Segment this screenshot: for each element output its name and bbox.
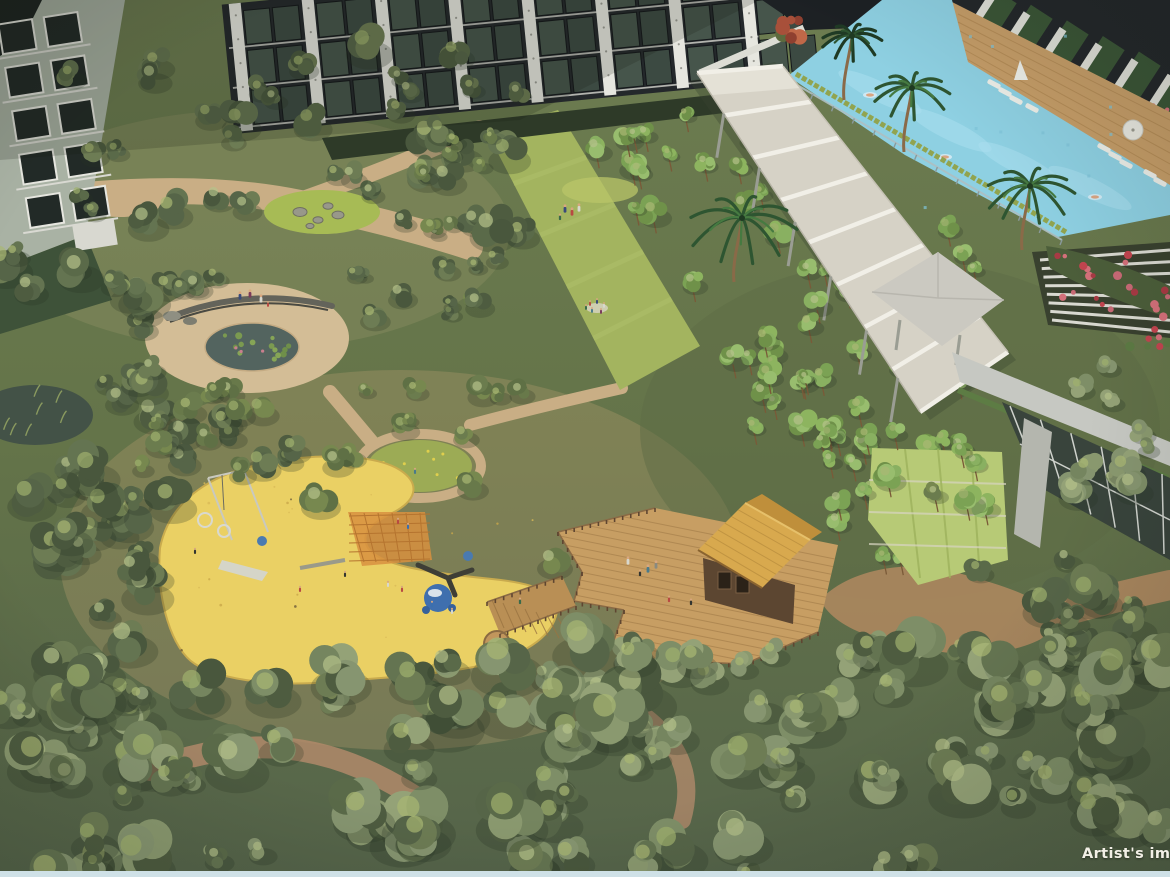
caption-artists-impression: Artist's imp	[1082, 846, 1170, 862]
lily-pond	[205, 323, 299, 371]
flowering-tree	[775, 16, 807, 45]
swimmer	[1088, 194, 1102, 200]
landscape-scene	[0, 0, 1170, 877]
artists-impression-rendering: Artist's imp	[0, 0, 1170, 877]
image-bottom-border	[0, 871, 1170, 877]
swimmer	[863, 92, 877, 98]
